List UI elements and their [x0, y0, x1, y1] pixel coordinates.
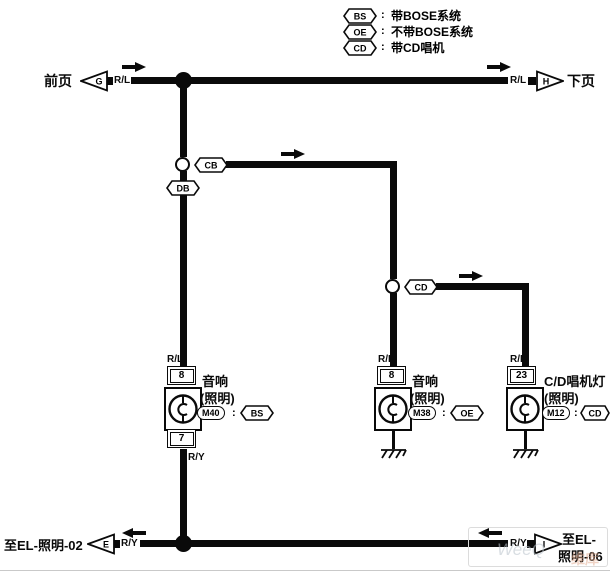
svg-text:G: G — [95, 77, 102, 87]
wire-bottom-main — [140, 540, 508, 547]
svg-text:DB: DB — [177, 184, 190, 194]
svg-text:I: I — [543, 540, 546, 550]
wiring-diagram-canvas: BS : 带BOSE系统 OE : 不带BOSE系统 CD : 带CD唱机 前页… — [0, 0, 610, 571]
wire-m40-to-bottom — [180, 449, 187, 543]
wire-vertical-main-upper — [180, 80, 187, 157]
m40-subname: (照明) — [200, 388, 235, 407]
legend-colon: : — [381, 41, 385, 53]
flow-arrow-right-icon — [487, 62, 511, 72]
flow-arrow-right-icon — [281, 149, 305, 159]
splice-tag-cd-icon: CD — [404, 279, 438, 295]
bulb-icon — [167, 390, 199, 428]
svg-text:BS: BS — [251, 409, 264, 419]
m38-ground-lead — [392, 431, 395, 449]
page-connector-e-icon: E — [87, 533, 115, 555]
m38-code-tag: M38 — [408, 406, 436, 420]
svg-text:H: H — [543, 77, 550, 87]
m12-pin-top: 23 — [507, 366, 536, 385]
m38-colon: : — [442, 407, 446, 419]
flow-arrow-right-icon — [122, 62, 146, 72]
splice-connector-circle-cd — [385, 279, 400, 294]
splice-connector-circle-cb — [175, 157, 190, 172]
svg-text:OE: OE — [353, 28, 366, 38]
wire-label-ry: R/Y — [188, 452, 205, 463]
legend-text-oe: 不带BOSE系统 — [391, 23, 473, 40]
wire-branch-cb — [226, 161, 397, 168]
svg-text:E: E — [103, 540, 109, 550]
wire-label-rl: R/L — [167, 354, 183, 365]
next-page-label: 下页 — [567, 71, 595, 91]
junction-dot-bottom — [175, 535, 192, 552]
flow-arrow-left-icon — [122, 528, 146, 538]
m12-code-tag: M12 — [542, 406, 570, 420]
m38-body — [374, 387, 412, 431]
wire-stub — [528, 77, 536, 85]
splice-tag-cb-icon: CB — [194, 157, 228, 173]
wire-label-ry: R/Y — [510, 538, 527, 549]
m40-colon: : — [232, 407, 236, 419]
legend-tag-oe-icon: OE — [343, 24, 377, 40]
m40-pin-bottom: 7 — [167, 429, 196, 448]
m40-body — [164, 387, 202, 431]
flow-arrow-right-icon — [459, 271, 483, 281]
prev-page-label: 前页 — [44, 71, 72, 91]
m38-subname: (照明) — [410, 388, 445, 407]
wire-label-rl: R/L — [114, 75, 130, 86]
svg-text:OE: OE — [460, 409, 473, 419]
m38-pin-top: 8 — [377, 366, 406, 385]
bottom-left-destination-label: 至EL-照明-02 — [4, 535, 83, 554]
ground-icon — [380, 448, 407, 462]
svg-text:CD: CD — [354, 44, 367, 54]
bottom-right-destination-line2: 照明-06 — [558, 546, 603, 565]
svg-text:CB: CB — [205, 161, 218, 171]
m40-pin-top: 8 — [167, 366, 196, 385]
ground-icon — [512, 448, 539, 462]
legend-colon: : — [381, 9, 385, 21]
legend-tag-cd-icon: CD — [343, 40, 377, 56]
page-connector-h-icon: H — [536, 70, 564, 92]
bulb-icon — [377, 390, 409, 428]
legend-text-cd: 带CD唱机 — [391, 39, 444, 56]
page-connector-g-icon: G — [80, 70, 108, 92]
svg-text:BS: BS — [354, 12, 367, 22]
legend-colon: : — [381, 25, 385, 37]
m40-condition-tag-bs-icon: BS — [240, 405, 274, 421]
m38-condition-tag-oe-icon: OE — [450, 405, 484, 421]
svg-text:CD: CD — [415, 283, 428, 293]
m40-code-tag: M40 — [197, 406, 225, 420]
m12-condition-tag-cd-icon: CD — [580, 405, 610, 421]
splice-tag-db-icon: DB — [166, 180, 200, 196]
wire-label-rl: R/L — [510, 354, 526, 365]
wire-label-ry: R/Y — [121, 538, 138, 549]
m12-colon: : — [574, 407, 578, 419]
m12-subname: (照明) — [544, 388, 579, 407]
wire-label-rl: R/L — [510, 75, 526, 86]
m12-ground-lead — [524, 431, 527, 449]
m12-body — [506, 387, 544, 431]
wire-vertical-main-lower — [180, 171, 187, 367]
bulb-icon — [509, 390, 541, 428]
legend-tag-bs-icon: BS — [343, 8, 377, 24]
wire-label-rl: R/L — [378, 354, 394, 365]
wire-vertical-middle-upper — [390, 161, 397, 279]
wire-branch-cd — [436, 283, 529, 290]
flow-arrow-left-icon — [478, 528, 502, 538]
legend-text-bs: 带BOSE系统 — [391, 7, 461, 24]
svg-text:CD: CD — [589, 409, 602, 419]
